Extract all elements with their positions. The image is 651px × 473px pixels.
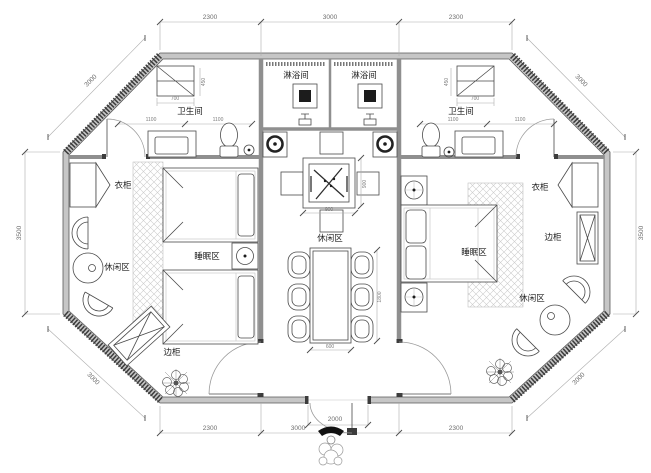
dining-chairs-right [351, 252, 373, 342]
toilet-right [422, 123, 440, 157]
dim-bath-right-a: 1100 [448, 117, 459, 123]
dim-closet-right: 700 [471, 96, 480, 102]
dim-bottom-center: 3000 [291, 425, 306, 432]
dim-right-side: 3500 [638, 225, 645, 240]
room-label-shower-right: 淋浴间 [351, 70, 377, 80]
tea-table-area: 900 900 休闲区 [281, 132, 379, 243]
tea-chair-right [357, 172, 379, 195]
room-label-leisure-right: 休闲区 [519, 293, 545, 303]
room-label-cabinet-left: 边柜 [163, 347, 181, 357]
room-label-leisure-center: 休闲区 [317, 233, 343, 243]
wardrobe-left-group: 衣柜 [70, 163, 132, 207]
shower-valve-right [364, 114, 376, 125]
dim-closet-left: 700 [171, 96, 180, 102]
dining-table [310, 248, 351, 343]
leisure-left-group: 休闲区 [72, 217, 130, 322]
bedroom-right: 睡眠区 [401, 176, 523, 312]
dim-bath-left-b: 1100 [213, 117, 224, 123]
shower-valve-left [299, 114, 311, 125]
rug-left [133, 162, 163, 332]
dim-diag-top-right: 3000 [573, 73, 588, 88]
leisure-table-right [540, 305, 570, 335]
leisure-chair-left-1 [72, 217, 88, 249]
entrance-figure-decoration [318, 427, 344, 466]
dim-bath-right-b: 1100 [515, 117, 526, 123]
dim-bottom-left: 2300 [203, 425, 218, 432]
room-label-sleeping-right: 睡眠区 [461, 247, 487, 257]
floor-plan-canvas: 2300 3000 2300 2300 3000 2300 2000 3500 … [0, 0, 651, 473]
entrance-door-stop [347, 428, 357, 435]
leisure-chair-right-2 [505, 329, 539, 363]
dim-closet-depth-right: 450 [444, 78, 450, 87]
dim-left-side: 3500 [16, 225, 23, 240]
dining-chairs-left [288, 252, 310, 342]
wardrobe-right-group: 衣柜 [531, 163, 598, 207]
door-bathroom-left [107, 119, 145, 157]
washbasin-right [373, 132, 397, 157]
dim-dining-length: 1800 [377, 291, 383, 302]
dim-top-center: 3000 [323, 14, 338, 21]
dimension-left: 3500 [16, 149, 60, 317]
room-label-wardrobe-right: 衣柜 [531, 182, 549, 192]
dim-top-left: 2300 [203, 14, 218, 21]
room-label-wardrobe-left: 衣柜 [114, 180, 132, 190]
room-label-leisure-left: 休闲区 [104, 262, 130, 272]
dim-bath-left-a: 1100 [146, 117, 157, 123]
dim-diag-top-left: 3000 [83, 73, 98, 88]
wardrobe-right-door [558, 163, 572, 207]
room-label-bathroom-right: 卫生间 [448, 106, 474, 116]
room-label-sleeping-left: 睡眠区 [194, 251, 220, 261]
bed-right [401, 205, 497, 282]
plant-left-icon [162, 369, 190, 397]
dim-diag-bottom-left: 3000 [85, 371, 100, 386]
dim-dining-width: 600 [326, 344, 335, 350]
room-label-shower-left: 淋浴间 [283, 70, 309, 80]
dim-top-right: 2300 [449, 14, 464, 21]
dim-bottom-right: 2300 [449, 425, 464, 432]
bathroom-left: 700 450 卫生间 1100 1100 [107, 66, 255, 157]
room-label-bathroom-left: 卫生间 [177, 106, 203, 116]
wardrobe-left-door [96, 163, 110, 207]
dim-tea-width: 900 [325, 207, 334, 213]
dimension-right: 3500 [613, 149, 645, 317]
dim-entrance: 2000 [328, 416, 343, 423]
side-cabinet-right: 边柜 [544, 212, 598, 264]
dim-diag-bottom-right: 3000 [571, 371, 586, 386]
plant-right-icon [486, 358, 514, 386]
washbasin-left [263, 132, 287, 157]
nightstand-right-top [401, 176, 427, 205]
dim-tea-height: 900 [362, 180, 368, 189]
tea-chair-left [281, 172, 303, 195]
room-label-cabinet-right: 边柜 [544, 232, 562, 242]
door-bedroom-left [209, 342, 261, 394]
nightstand-left [232, 243, 258, 269]
floor-plan-drawing: 2300 3000 2300 2300 3000 2300 2000 3500 … [0, 0, 651, 473]
leisure-chair-left-2 [77, 292, 113, 322]
shower-room-left: 淋浴间 [266, 64, 326, 125]
dim-closet-depth-left: 450 [201, 78, 207, 87]
leisure-table-left [73, 253, 103, 283]
toilet-left [220, 123, 238, 157]
bed-left-1 [163, 168, 258, 242]
shower-room-right: 淋浴间 [334, 64, 394, 125]
tea-chair-top [320, 132, 343, 154]
dining-area: 600 1800 [288, 247, 383, 353]
leisure-chair-right-1 [563, 269, 597, 303]
bed-left-2 [163, 270, 258, 344]
nightstand-right-bottom [401, 283, 427, 312]
door-bedroom-right [399, 342, 451, 394]
dimension-top: 2300 3000 2300 [157, 14, 515, 56]
door-bathroom-right [516, 119, 554, 157]
